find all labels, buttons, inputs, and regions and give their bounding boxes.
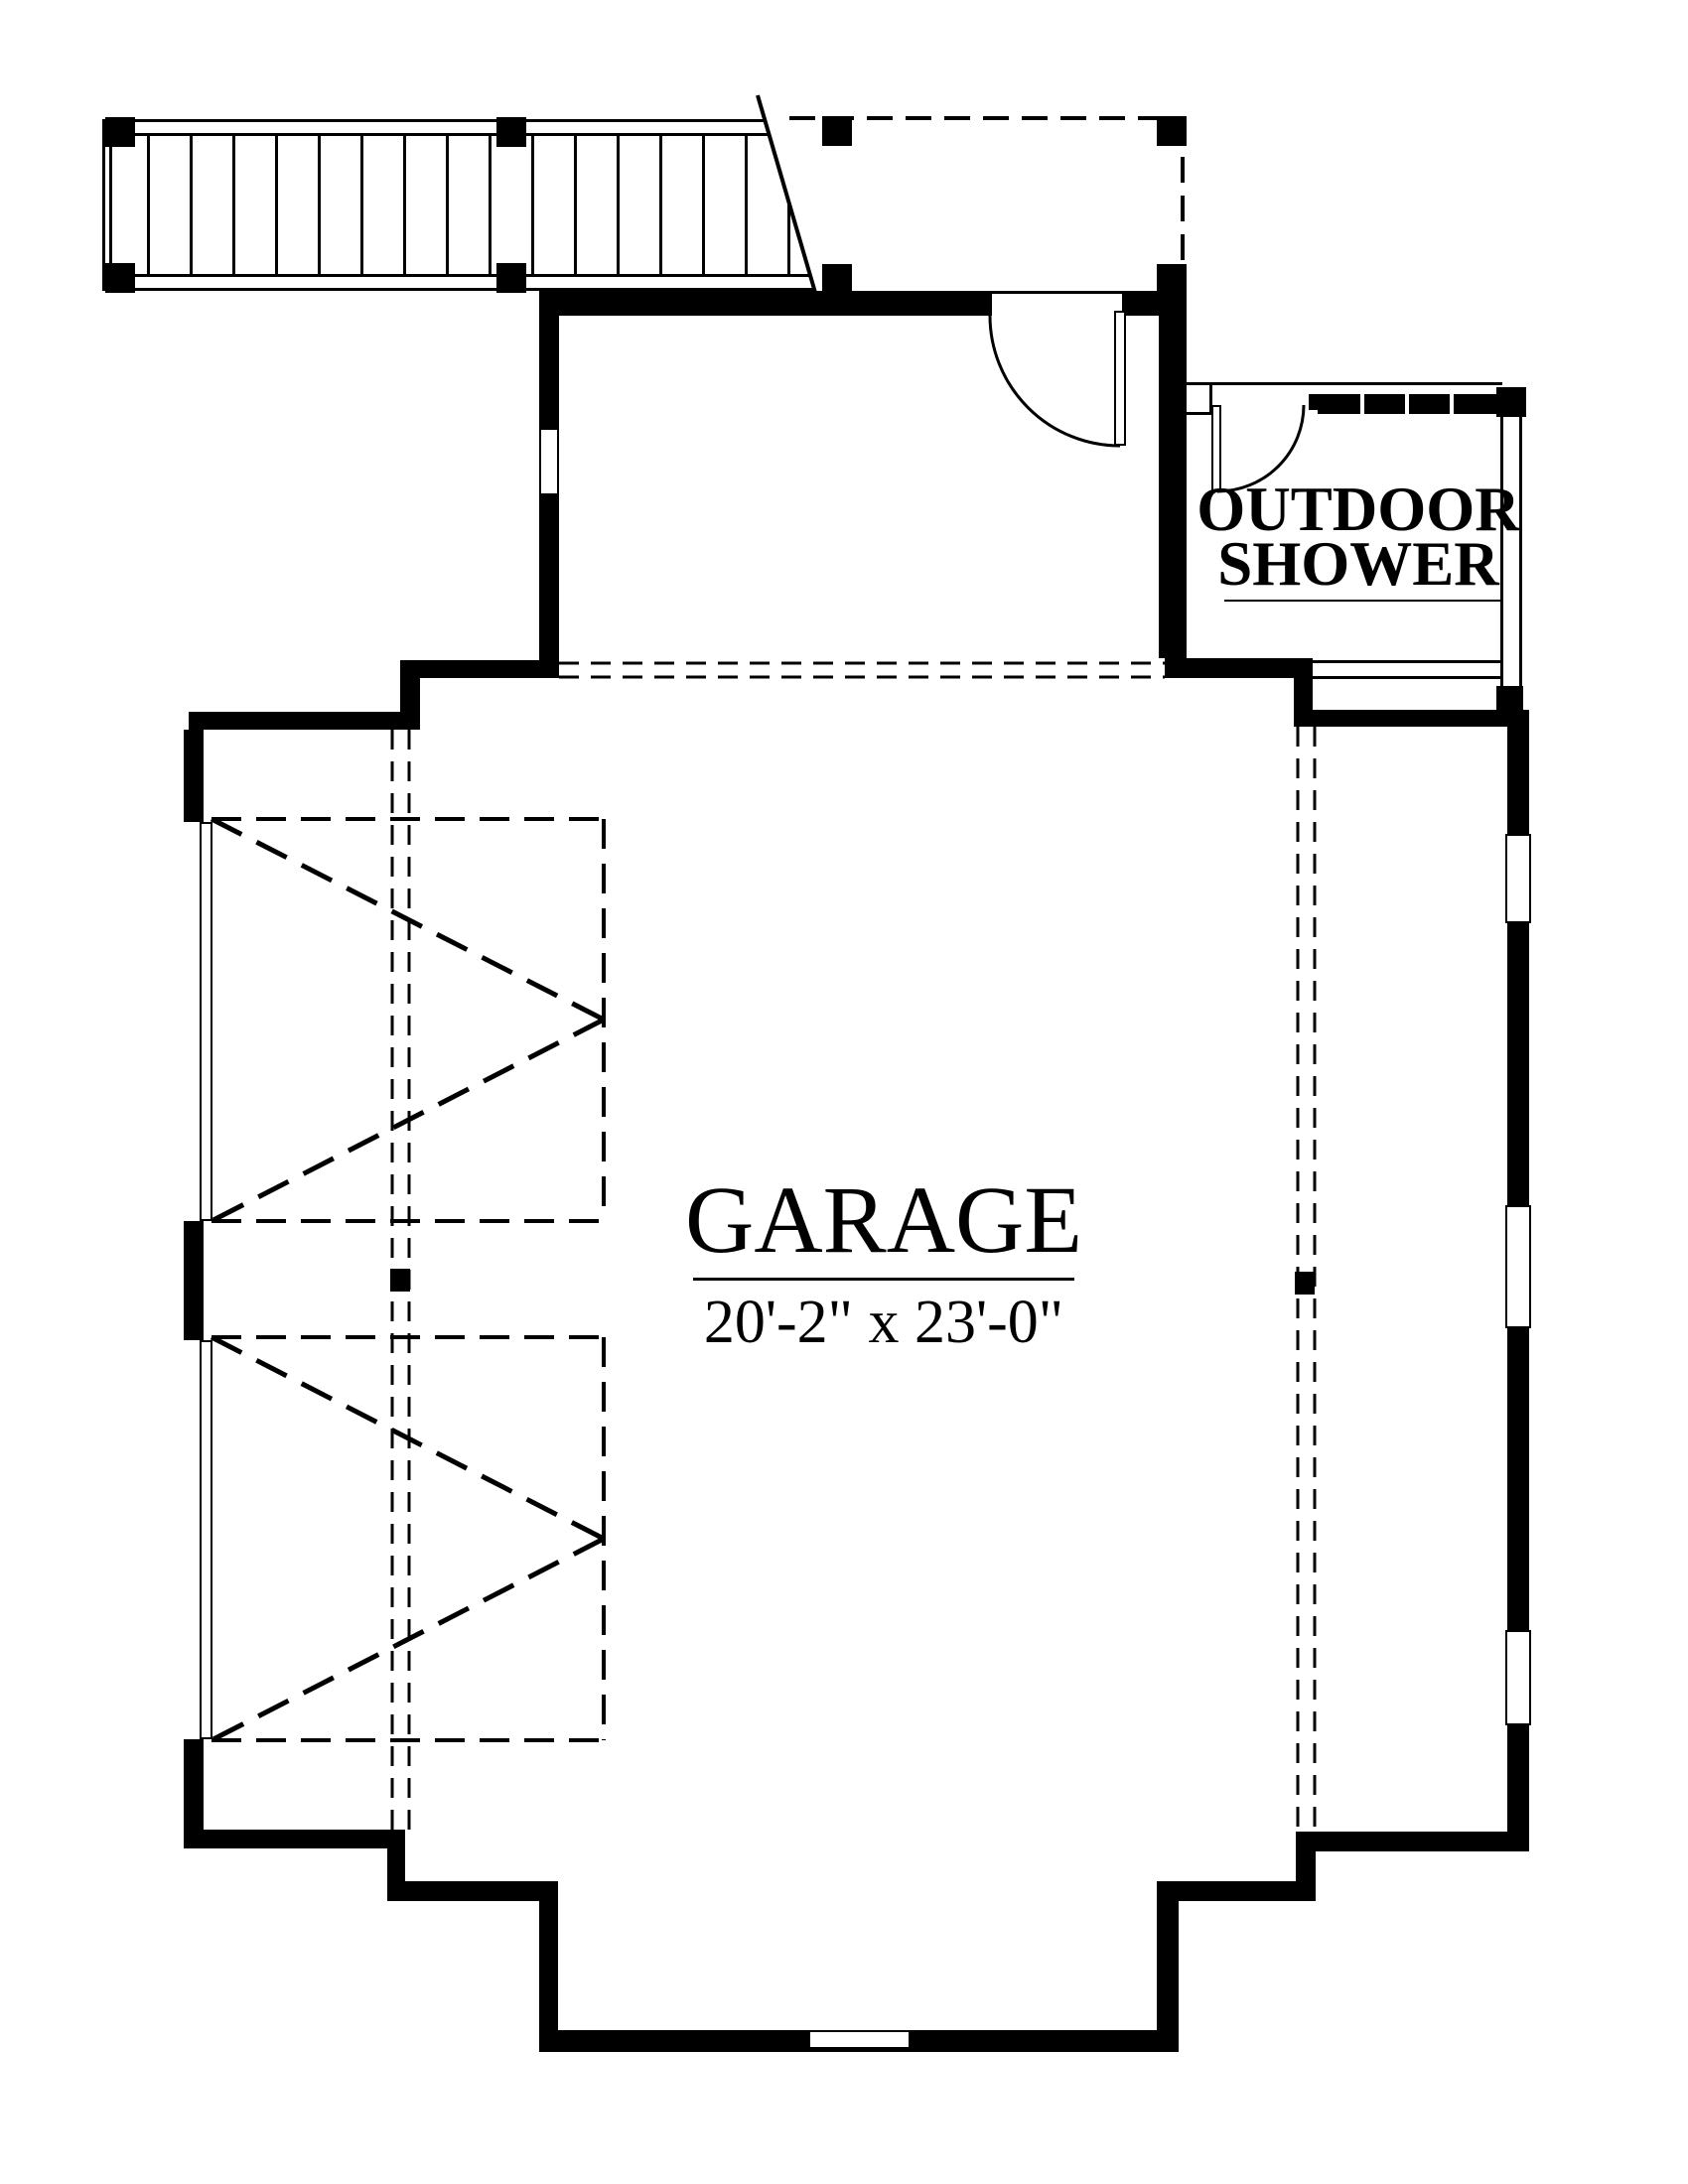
stair-newel-post (105, 117, 135, 147)
wall-vestibule-left-upper (539, 291, 559, 430)
stair-tread (489, 136, 492, 275)
structure-post-right (1295, 1272, 1315, 1295)
stair-rail-top-inner (102, 133, 770, 136)
window-bottom (808, 2030, 911, 2049)
garage-label-underline (693, 1278, 1074, 1281)
stair-rail-top-outer (102, 119, 765, 122)
door-opening-threshold (992, 291, 1122, 294)
wall-garage-top-right-2 (1313, 710, 1529, 727)
wall-garage-right-1 (1507, 710, 1529, 834)
porch-column (1157, 264, 1187, 294)
stair-newel-post (105, 263, 135, 293)
wall-garage-right-4 (1507, 1725, 1529, 1851)
garage-door-1-panel (200, 822, 212, 1221)
stair-tread (403, 136, 406, 275)
stair-newel-post (496, 263, 526, 293)
stair-tread (745, 136, 748, 275)
structure-post-left (390, 1269, 410, 1292)
wall-garage-top-right-step (1294, 658, 1313, 727)
shower-door-jamb-line (1187, 412, 1211, 415)
room-label-outdoor-shower-line2: SHOWER (1190, 533, 1527, 596)
shower-window-mullion (1405, 394, 1409, 414)
floor-plan-canvas: GARAGE 20'-2" x 23'-0" OUTDOOR SHOWER (0, 0, 1688, 2184)
plan-linework-overlay (0, 0, 1688, 2184)
stair-tread (531, 136, 534, 275)
shower-window-mullion (1360, 394, 1364, 414)
entry-door-swing (990, 316, 1120, 446)
stair-tread (659, 136, 662, 275)
wall-garage-left-lower (184, 1739, 204, 1848)
wall-garage-top-left-2 (189, 712, 420, 730)
porch-column (822, 264, 852, 294)
window-garage-right-3 (1505, 1630, 1531, 1725)
wall-bottom-1 (539, 2030, 808, 2052)
shower-corner-post (1496, 387, 1526, 417)
wall-garage-right-2 (1507, 923, 1529, 1205)
stair-tread (446, 136, 449, 275)
wall-vestibule-left-lower (539, 493, 559, 678)
stair-tread (702, 136, 705, 275)
stair-tread (360, 136, 363, 275)
shower-window-mullion (1450, 394, 1454, 414)
stair-tread-partial (787, 204, 790, 275)
wall-garage-top-left (420, 660, 559, 678)
wall-garage-left-upper (184, 730, 204, 822)
entry-door-leaf (1114, 311, 1126, 446)
window-vestibule-left (539, 428, 559, 495)
wall-vestibule-top-left (539, 291, 992, 316)
shower-window-jamb (1309, 394, 1318, 410)
shower-curb-inner (1313, 676, 1502, 679)
porch-column (822, 116, 852, 146)
wall-bottom-right-step-1 (1296, 1832, 1316, 1901)
wall-garage-top-right (1165, 658, 1313, 678)
garage-door-1-swing (211, 819, 604, 1221)
window-bottom-sill (808, 2049, 911, 2052)
stair-tread (190, 136, 193, 275)
wall-garage-right-3 (1507, 1328, 1529, 1630)
porch-column (1157, 116, 1187, 146)
wall-bottom-left-step-1 (387, 1830, 405, 1901)
room-dimensions-garage: 20'-2" x 23'-0" (596, 1292, 1172, 1353)
stair-tread (574, 136, 577, 275)
wall-garage-left-post (184, 1221, 204, 1340)
wall-bottom-left-2 (405, 1881, 558, 1901)
shower-curb-outer (1313, 660, 1502, 663)
room-label-garage: GARAGE (596, 1172, 1172, 1268)
stair-tread (275, 136, 278, 275)
window-garage-right-2 (1505, 1205, 1531, 1328)
stair-tread (147, 136, 150, 275)
wall-bottom-left-step-2 (539, 1881, 558, 2052)
shower-wall-top (1187, 382, 1502, 385)
stair-tread (318, 136, 321, 275)
wall-vestibule-right (1159, 291, 1187, 658)
wall-bottom-left-1 (204, 1830, 405, 1848)
shower-label-underline (1224, 600, 1502, 602)
wall-bottom-right-1 (1316, 1832, 1507, 1851)
wall-bottom-right-step-2 (1157, 1881, 1179, 2052)
window-garage-right-1 (1505, 834, 1531, 923)
garage-door-2-panel (200, 1340, 212, 1739)
stair-newel-post (496, 117, 526, 147)
wall-bottom-2 (911, 2030, 1179, 2052)
stair-tread (232, 136, 235, 275)
garage-door-2-swing (211, 1337, 604, 1740)
shower-corner-post (1496, 686, 1523, 711)
stair-tread (617, 136, 620, 275)
